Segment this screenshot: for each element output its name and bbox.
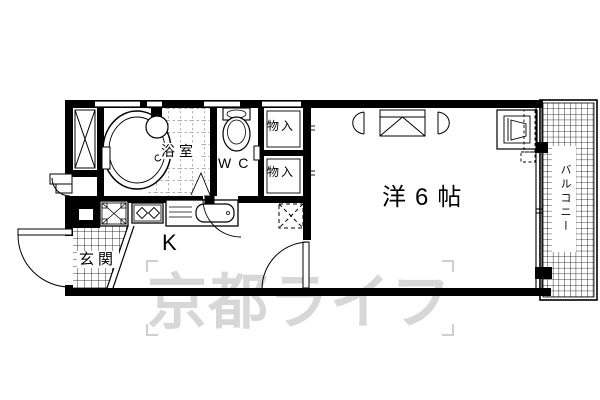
entrance-door-icon [18, 229, 72, 287]
entrance-label: 玄関 [77, 251, 119, 268]
air-conditioner-icon [497, 110, 537, 162]
room-door-icon [262, 242, 309, 289]
bathroom-label: 浴室 [159, 143, 199, 159]
overhead-cabinet-icon [380, 110, 425, 136]
storage-lower-label: 物入 [267, 166, 295, 178]
storage-upper-label: 物入 [267, 120, 295, 132]
floorplan-drawing [0, 0, 600, 400]
utility-door-icon [50, 174, 72, 196]
gas-stove-icon [132, 203, 163, 223]
wall-lamp-right-icon [438, 112, 449, 134]
western-room-label: 洋6帖 [382, 186, 470, 210]
kitchen-sink-icon [166, 196, 238, 226]
meter-box-icon [75, 110, 95, 168]
washing-machine-pan-icon [100, 201, 128, 226]
kitchen-label: K [162, 232, 177, 254]
balcony-label: バルコニー [553, 148, 576, 250]
toilet-icon [223, 108, 260, 160]
floorplan-page: 京都ライフ [0, 0, 600, 400]
refrigerator-space-icon [279, 204, 303, 228]
wall-lamp-left-icon [353, 112, 364, 134]
toilet-label: WC [218, 156, 255, 170]
